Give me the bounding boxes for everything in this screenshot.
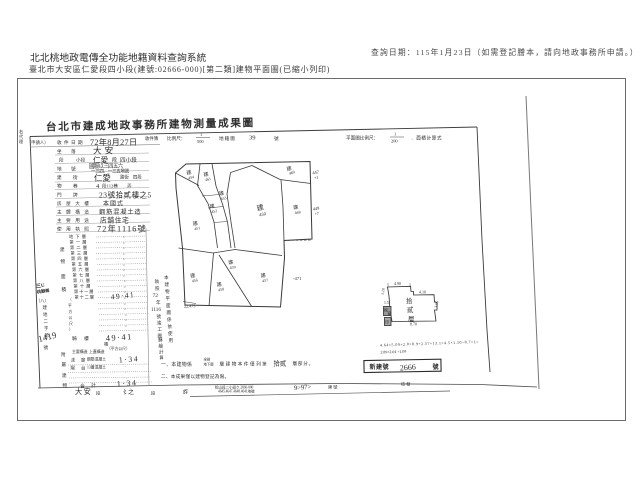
svg-text:（申請人）: （申請人） (27, 139, 48, 146)
svg-text:2.89×2.04 +1.08: 2.89×2.04 +1.08 (380, 350, 406, 355)
svg-text:繪: 繪 (159, 343, 164, 350)
svg-text:轉: 轉 (158, 337, 163, 344)
svg-text:廊: 廊 (81, 357, 86, 364)
svg-text:4.10: 4.10 (419, 290, 426, 295)
svg-text:字: 字 (44, 325, 49, 331)
svg-text:樓: 樓 (84, 335, 89, 342)
svg-text:門: 門 (57, 193, 62, 199)
svg-text:主要用途: 主要用途 (57, 217, 93, 224)
svg-text:核發: 核發 (401, 381, 411, 388)
svg-text:陽: 陽 (71, 365, 76, 372)
svg-text:章: 章 (388, 310, 392, 316)
svg-text:斿: 斿 (183, 389, 188, 396)
svg-text:建: 建 (43, 304, 48, 311)
svg-text:街: 街 (73, 174, 78, 181)
svg-text:建號: 建號 (328, 384, 338, 391)
svg-text:層: 層 (408, 315, 414, 323)
svg-text:號: 號 (71, 166, 76, 173)
svg-text:（平方公尺）: （平方公尺） (107, 346, 130, 351)
svg-text:一、本建物係: 一、本建物係 (161, 361, 192, 368)
svg-text:號: 號 (157, 313, 162, 320)
svg-text:大安: 大安 (93, 145, 116, 156)
svg-text:72年1116號: 72年1116號 (97, 224, 147, 234)
svg-text:執: 執 (155, 278, 160, 285)
svg-text:1419: 1419 (37, 330, 58, 344)
svg-text:工: 工 (158, 327, 163, 332)
svg-text:4.64×5.09+2.0×0.9+2.57+13.1×4.: 4.64×5.09+2.0×0.9+2.57+13.1×4.5×1.10−8.7… (380, 339, 479, 347)
svg-text:依: 依 (168, 323, 173, 330)
svg-text:公: 公 (69, 315, 73, 320)
svg-text:四小段: 四小段 (120, 156, 137, 164)
svg-text:·: · (125, 370, 126, 375)
svg-text:458: 458 (218, 286, 225, 292)
svg-text:72: 72 (153, 293, 159, 299)
svg-text:號: 號 (433, 363, 439, 371)
svg-text:地: 地 (43, 311, 48, 317)
svg-text:印: 印 (385, 319, 389, 325)
svg-text:使: 使 (168, 330, 173, 337)
svg-text:建: 建 (62, 372, 67, 379)
svg-text:49·41: 49·41 (106, 332, 134, 343)
svg-text:450: 450 (259, 211, 267, 217)
svg-text:二、本成果僅以建物登記為限。: 二、本成果僅以建物登記為限。 (161, 373, 229, 380)
svg-text:地下層: 地下層 (204, 362, 214, 367)
svg-text:面: 面 (166, 303, 171, 309)
svg-text:仁愛: 仁愛 (93, 155, 109, 165)
svg-text:建: 建 (165, 281, 170, 288)
svg-text:454: 454 (188, 174, 195, 180)
svg-text:層建物本件僅列第: 層建物本件僅列第 (220, 361, 269, 368)
svg-text:建: 建 (57, 174, 62, 181)
svg-text:房屋大樓: 房屋大樓 (57, 200, 93, 207)
svg-text:23號拾貳樓之5: 23號拾貳樓之5 (99, 191, 152, 200)
svg-text:39: 39 (249, 135, 256, 142)
svg-text:22.475: 22.475 (184, 303, 196, 309)
svg-text:騎: 騎 (72, 335, 77, 342)
svg-text:200: 200 (391, 139, 398, 144)
svg-text:本: 本 (164, 274, 169, 281)
svg-text:附: 附 (61, 351, 66, 358)
svg-text:段: 段 (112, 157, 117, 164)
svg-text:走: 走 (71, 358, 76, 364)
svg-text:-471: -471 (293, 276, 302, 281)
svg-text:巷: 巷 (73, 184, 78, 189)
svg-text:1: 1 (200, 132, 202, 137)
svg-text:+7: +7 (315, 211, 319, 216)
svg-text:號: 號 (44, 344, 49, 351)
svg-text:平面圖比例尺：: 平面圖比例尺： (346, 135, 378, 142)
svg-text:拾貳: 拾貳 (274, 359, 287, 368)
svg-text:·: · (125, 364, 126, 369)
svg-text:面: 面 (61, 274, 66, 280)
svg-text:物: 物 (165, 288, 170, 295)
svg-text:段: 段 (59, 157, 64, 164)
svg-text:收件簿: 收件簿 (145, 135, 159, 142)
svg-text:）: ） (69, 327, 73, 332)
svg-text:（八）: （八） (36, 298, 49, 303)
svg-text:地籍圖: 地籍圖 (219, 135, 236, 142)
svg-text:新建號: 新建號 (370, 363, 390, 371)
svg-text:49·41: 49·41 (110, 290, 135, 301)
svg-text:主體構造: 主體構造 (57, 209, 93, 216)
svg-text:·: · (125, 324, 127, 330)
svg-text:段: 段 (151, 390, 156, 397)
svg-text:13蓋混凝土: 13蓋混凝土 (87, 365, 106, 370)
svg-text:鋼筋混凝土造: 鋼筋混凝土造 (99, 208, 142, 216)
svg-text:469: 469 (288, 169, 295, 175)
svg-text:平: 平 (68, 304, 72, 308)
svg-text:500: 500 (197, 139, 204, 144)
svg-text:457: 457 (262, 277, 269, 283)
svg-text:全部: 全部 (204, 357, 211, 362)
svg-text:1·34: 1·34 (119, 354, 140, 364)
svg-text:屬: 屬 (62, 362, 67, 368)
svg-text:456: 456 (191, 277, 198, 283)
svg-text:收件日期: 收件日期 (57, 139, 85, 146)
svg-text:台北市建成地政事務所建物測量成果圖: 台北市建成地政事務所建物測量成果圖 (46, 116, 255, 133)
svg-text:路街: 路街 (120, 174, 129, 181)
svg-text:1: 1 (394, 132, 396, 137)
svg-text:9>97>: 9>97> (294, 384, 312, 392)
svg-text:主要構造: 主要構造 (72, 349, 88, 354)
svg-text:4.90: 4.90 (394, 281, 401, 286)
svg-text:大安: 大安 (75, 387, 92, 396)
svg-text:〻之: 〻之 (122, 388, 134, 396)
svg-text:2666: 2666 (400, 362, 417, 372)
svg-text:451: 451 (194, 225, 201, 231)
svg-text:落: 落 (71, 148, 76, 155)
svg-text:段112巷: 段112巷 (102, 183, 118, 190)
svg-text:（: （ (68, 297, 72, 302)
svg-text:452: 452 (211, 208, 218, 214)
svg-text:台: 台 (81, 365, 86, 372)
svg-text:積: 積 (62, 286, 67, 293)
svg-text:4: 4 (96, 183, 100, 190)
svg-text:用: 用 (169, 338, 174, 344)
svg-text:平: 平 (166, 296, 171, 302)
svg-text:竣: 竣 (157, 320, 162, 327)
svg-text:理: 理 (19, 139, 24, 144)
svg-text:層部分。: 層部分。 (293, 360, 315, 367)
svg-text:461: 461 (205, 176, 212, 182)
svg-text:貳: 貳 (407, 305, 414, 314)
svg-text:坐: 坐 (57, 148, 62, 154)
svg-text:拾: 拾 (406, 296, 413, 305)
svg-text:第十二層: 第十二層 (75, 294, 95, 301)
svg-text:468: 468 (294, 209, 301, 215)
svg-text:弄: 弄 (127, 184, 132, 190)
svg-text:牌: 牌 (73, 192, 78, 199)
svg-text:．面積計算式: ．面積計算式 (411, 135, 442, 142)
svg-text:照: 照 (155, 286, 160, 292)
svg-text:鋼筋混凝土: 鋼筋混凝土 (87, 357, 106, 362)
svg-text:物: 物 (61, 258, 66, 265)
svg-text:圖: 圖 (167, 310, 172, 316)
svg-text:店舖住宅: 店舖住宅 (100, 216, 130, 225)
svg-text:段: 段 (96, 390, 101, 397)
svg-text:+1: +1 (314, 175, 318, 180)
svg-text:四段: 四段 (133, 174, 142, 181)
svg-text:仁愛: 仁愛 (94, 173, 111, 183)
svg-text:1·34: 1·34 (117, 378, 138, 388)
svg-text:1.10: 1.10 (380, 288, 386, 296)
svg-text:年: 年 (156, 299, 161, 306)
svg-text:係: 係 (167, 316, 172, 323)
svg-text:算: 算 (160, 354, 164, 360)
svg-text:方: 方 (69, 309, 73, 314)
svg-text:小段: 小段 (76, 157, 86, 164)
svg-text:二: 二 (44, 319, 49, 324)
svg-text:號: 號 (274, 135, 279, 142)
svg-text:3.05: 3.05 (433, 300, 439, 308)
svg-text:453: 453 (220, 195, 227, 201)
svg-text:尺: 尺 (69, 322, 73, 326)
svg-text:本國式: 本國式 (103, 200, 124, 208)
svg-text:地: 地 (57, 166, 62, 172)
svg-text:物: 物 (57, 183, 62, 190)
svg-text:1.5: 1.5 (384, 301, 389, 305)
svg-text:459: 459 (229, 264, 236, 270)
svg-text:比例尺：: 比例尺： (167, 135, 185, 142)
svg-text:使用執照: 使用執照 (57, 226, 93, 233)
svg-text:上蓋構造: 上蓋構造 (89, 349, 105, 354)
svg-text:建: 建 (60, 246, 65, 253)
svg-text:物: 物 (63, 382, 68, 389)
svg-text:1116: 1116 (151, 307, 161, 313)
svg-text:4645.4647.4648.4641地號: 4645.4647.4648.4641地號 (218, 389, 255, 394)
